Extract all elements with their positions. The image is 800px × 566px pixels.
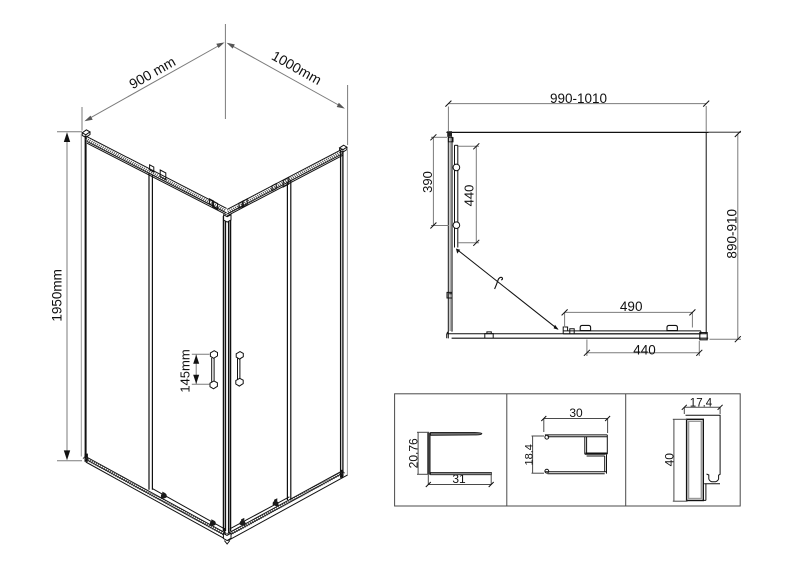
svg-text:490: 490 — [620, 299, 643, 314]
svg-text:40: 40 — [663, 453, 677, 467]
svg-text:390: 390 — [420, 171, 435, 193]
svg-text:31: 31 — [452, 472, 466, 486]
svg-text:30: 30 — [569, 406, 583, 420]
svg-text:990-1010: 990-1010 — [550, 91, 607, 106]
svg-text:1950mm: 1950mm — [49, 269, 64, 322]
svg-text:145mm: 145mm — [177, 349, 192, 392]
svg-text:18.4: 18.4 — [523, 444, 535, 465]
svg-text:17.4: 17.4 — [690, 398, 713, 410]
svg-text:20.76: 20.76 — [406, 438, 420, 468]
svg-text:890-910: 890-910 — [724, 209, 739, 259]
svg-text:440: 440 — [462, 185, 477, 207]
svg-text:440: 440 — [633, 343, 656, 358]
